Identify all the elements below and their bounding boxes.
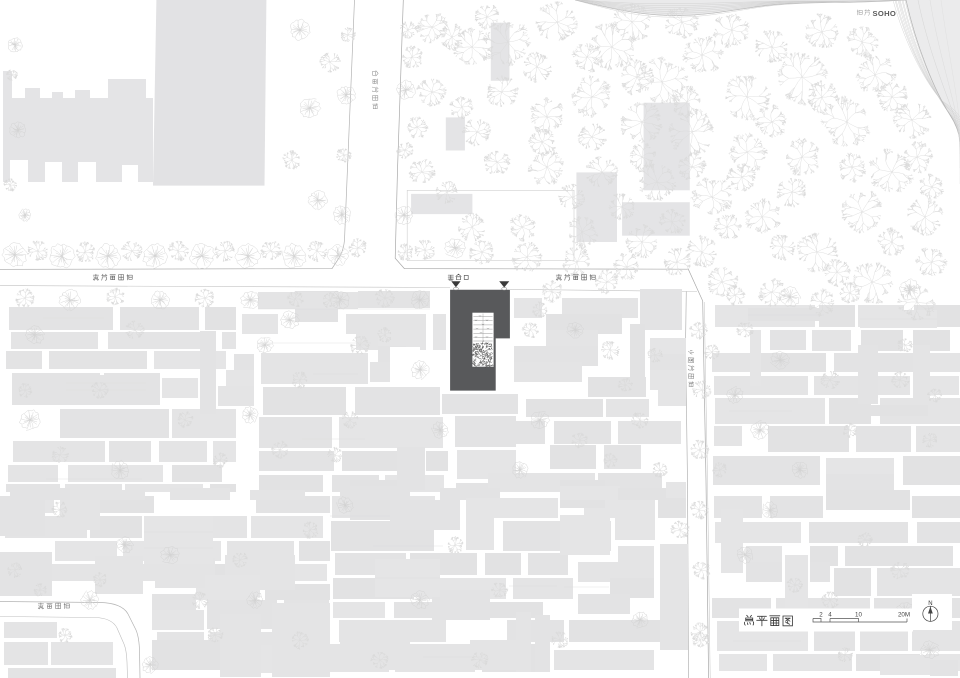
svg-text:2: 2: [819, 612, 823, 619]
svg-text:SOHO: SOHO: [873, 9, 897, 18]
svg-text:10: 10: [855, 612, 862, 619]
svg-text:20M: 20M: [898, 612, 910, 619]
svg-text:N: N: [928, 601, 932, 607]
svg-text:4: 4: [828, 612, 832, 619]
